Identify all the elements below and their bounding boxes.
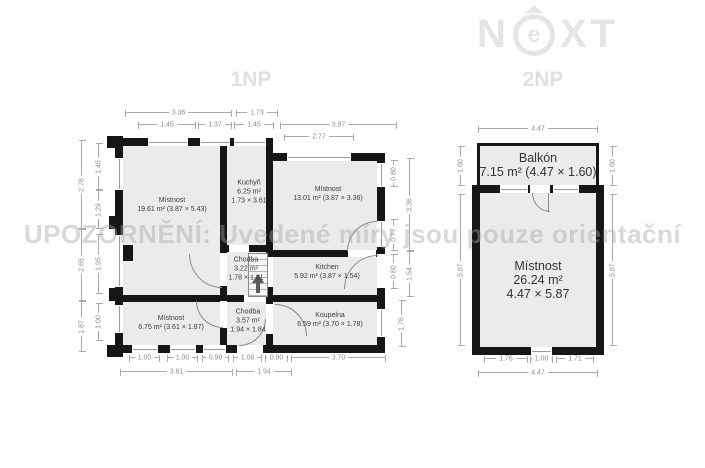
plan-title-2np: 2NP — [513, 68, 573, 92]
dimension-label: 3.36 — [125, 112, 232, 113]
window — [115, 158, 123, 190]
room-label: Místnost26.24 m²4.47 × 5.87 — [507, 259, 570, 301]
dimension-label: 0.98 — [202, 357, 229, 358]
dimension-label: 1.94 — [236, 371, 292, 372]
door-opening — [377, 254, 385, 288]
dimension-label: 0.80 — [265, 357, 288, 358]
dimension-label: 1.73 — [236, 112, 278, 113]
next-logo: N e XT — [477, 12, 619, 57]
wall — [596, 185, 604, 355]
logo-circled-e-icon: e — [513, 14, 555, 56]
wall — [109, 288, 123, 301]
dimension-label: 1.60 — [612, 146, 613, 186]
window — [170, 345, 196, 353]
logo-caret-icon — [525, 5, 543, 13]
logo-letter-e: e — [527, 21, 540, 48]
dimension-label: 1.00 — [98, 303, 99, 341]
window — [200, 138, 230, 146]
dimension-label: 5.87 — [460, 194, 461, 346]
floorplan-canvas: N e XT 1NP 2NP Místnost19.61 m² (3.87 × … — [0, 0, 705, 468]
window — [148, 138, 188, 146]
dimension-label: 1.71 — [556, 358, 594, 359]
dimension-label: 3.61 — [120, 371, 233, 372]
dimension-label: 0.80 — [393, 160, 394, 187]
window — [234, 138, 266, 146]
window — [500, 185, 528, 193]
dimension-label: 1.54 — [409, 251, 410, 297]
wall — [477, 143, 599, 146]
dimension-label: 1.76 — [484, 358, 528, 359]
dimension-label: 0.80 — [393, 254, 394, 289]
window — [377, 163, 385, 187]
logo-letters-xt: XT — [560, 12, 619, 57]
room-label: Kitchen5.92 m² (3.87 × 1.54) — [294, 263, 360, 281]
dimension-label: 1.37 — [198, 124, 232, 125]
dimension-label: 1.00 — [129, 357, 160, 358]
room-label: Chodba3.22 m²1.78 × 1.81 — [228, 256, 263, 283]
room-label: Místnost19.61 m² (3.87 × 5.43) — [137, 196, 206, 214]
dimension-label: 3.70 — [291, 357, 386, 358]
room-label: Koupelna6.59 m² (3.70 × 1.78) — [297, 311, 363, 329]
dimension-label: 5.87 — [612, 194, 613, 346]
window — [377, 309, 385, 337]
door-opening — [530, 185, 550, 193]
window — [115, 305, 123, 333]
watermark: UPOZORNĚNÍ: Uvedené míry jsou pouze orie… — [0, 219, 705, 250]
dimension-label: 1.45 — [98, 143, 99, 190]
room-label: Místnost13.01 m² (3.87 × 3.36) — [293, 185, 362, 203]
window — [531, 347, 552, 355]
dimension-label: 1.78 — [401, 300, 402, 347]
dimension-label: 2.78 — [81, 140, 82, 229]
room-label: Balkón7.15 m² (4.47 × 1.60) — [479, 151, 596, 179]
dimension-label: 4.47 — [478, 372, 598, 373]
wall — [472, 185, 480, 355]
dimension-label: 4.47 — [478, 128, 598, 129]
dimension-label: 1.45 — [234, 124, 274, 125]
window — [203, 345, 226, 353]
window — [132, 345, 158, 353]
plan-title-1np: 1NP — [221, 68, 281, 92]
dimension-label: 1.45 — [138, 124, 196, 125]
dimension-label: 2.77 — [284, 136, 354, 137]
door-opening — [266, 304, 273, 334]
wall — [107, 345, 123, 357]
dimension-label: 1.87 — [81, 301, 82, 352]
dimension-label: 1.00 — [530, 358, 553, 359]
window — [553, 185, 579, 193]
dimension-label: 1.08 — [233, 357, 262, 358]
room-label: Místnost6.75 m² (3.61 × 1.87) — [138, 314, 204, 332]
window — [287, 153, 351, 161]
logo-letter-n: N — [477, 12, 508, 57]
dimension-label: 1.60 — [460, 146, 461, 186]
room-label: Chodba3.57 m²1.94 × 1.84 — [230, 308, 265, 335]
door-leaf — [548, 193, 549, 212]
dimension-label: 3.87 — [280, 124, 397, 125]
room-label: Kuchyň6.25 m²1.73 × 3.61 — [231, 179, 266, 206]
dimension-label: 1.00 — [167, 357, 198, 358]
door-opening — [237, 345, 263, 353]
wall — [107, 136, 123, 148]
